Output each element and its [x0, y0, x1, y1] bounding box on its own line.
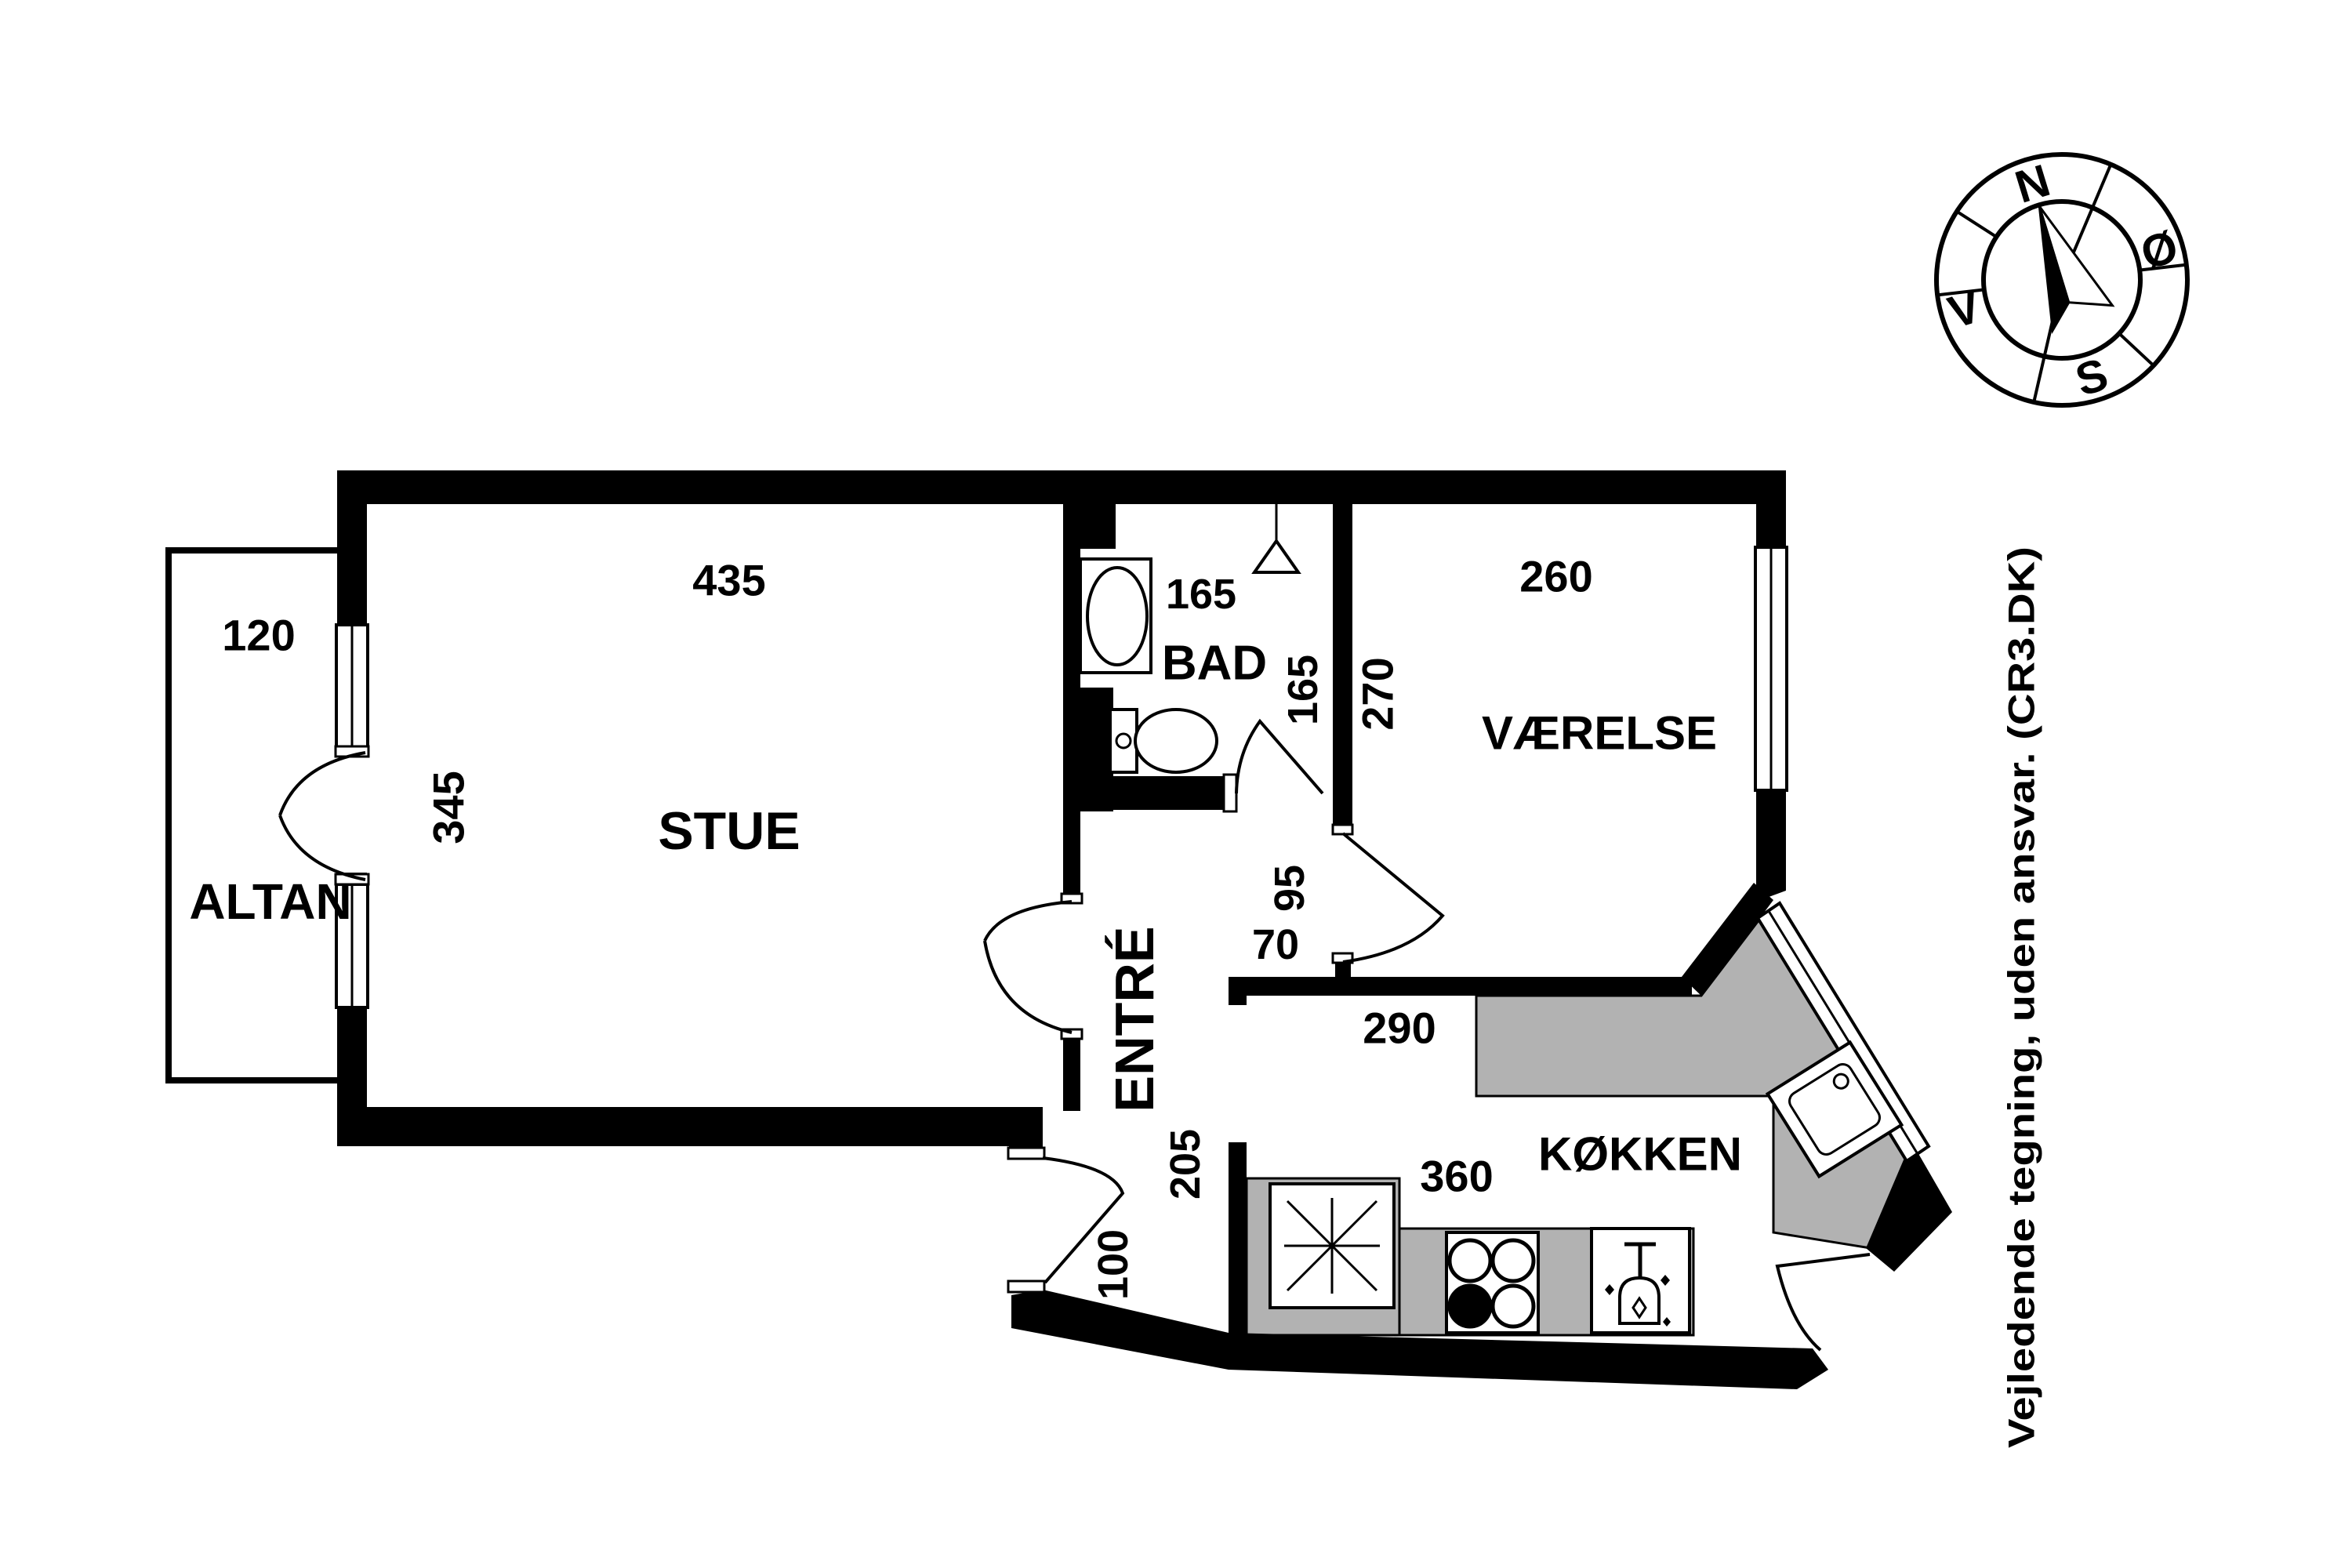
room-label-koekken: KØKKEN — [1538, 1128, 1742, 1181]
disclaimer-text: Vejledende tegning, uden ansvar. (CR3.DK… — [2001, 546, 2042, 1448]
vaerelse-door-sill-top — [1333, 825, 1352, 834]
room-label-bad: BAD — [1162, 637, 1267, 691]
balcony-door-icon — [280, 753, 365, 880]
wall-left-upper — [337, 470, 367, 625]
room-label-stue: STUE — [658, 801, 800, 861]
bathroom-sink-icon — [1080, 559, 1151, 673]
wall-top — [337, 470, 1786, 504]
back-door-icon — [1777, 1254, 1870, 1350]
wall-kitchen-bottom — [1229, 1333, 1828, 1389]
wall-vaerelse-door-stub — [1335, 962, 1351, 978]
dim-entre-width: 100 — [1090, 1229, 1137, 1300]
dim-bad-height: 165 — [1279, 655, 1327, 725]
wall-kitchen-top-stub — [1229, 977, 1247, 1005]
compass-icon: N Ø S V — [1905, 123, 2219, 438]
dim-altan-depth: 120 — [222, 611, 295, 660]
wall-kitchen-top — [1229, 977, 1692, 996]
floor-plan-page: N Ø S V ALTAN STUE BAD VÆRELSE ENTRÉ KØK… — [0, 0, 2352, 1568]
dim-koekken-top-width: 290 — [1363, 1004, 1436, 1053]
stue-window-upper-icon — [336, 625, 368, 748]
wall-bad-nw-block — [1080, 470, 1116, 549]
wall-bad-bottom — [1080, 776, 1225, 810]
door-sills — [336, 746, 1352, 1292]
dim-koekken-bottom-width: 360 — [1420, 1152, 1493, 1201]
vaerelse-window-icon — [1755, 547, 1787, 790]
room-label-vaerelse: VÆRELSE — [1482, 707, 1717, 760]
wall-stue-east-upper — [1063, 470, 1080, 900]
fridge-icon — [1270, 1184, 1394, 1308]
dim-vaerelse-width: 260 — [1519, 552, 1592, 601]
wall-bad-vaerelse — [1333, 470, 1352, 829]
wall-entre-slanted — [1011, 1290, 1229, 1370]
bad-door-icon — [1236, 721, 1323, 793]
room-label-entre: ENTRÉ — [1104, 926, 1165, 1112]
floor-plan-drawing: N Ø S V ALTAN STUE BAD VÆRELSE ENTRÉ KØK… — [0, 0, 2352, 1568]
dim-entre-nook-width: 95 — [1266, 865, 1313, 912]
wall-left-lower — [337, 1007, 367, 1109]
dishwasher-icon — [1592, 1229, 1690, 1333]
front-door-sill-bottom — [1008, 1281, 1044, 1292]
shower-icon — [1254, 504, 1298, 572]
dim-stue-width: 435 — [692, 556, 765, 605]
bad-door-sill-left — [1224, 775, 1236, 811]
dim-vaerelse-height: 270 — [1353, 657, 1403, 730]
stue-door-icon — [985, 902, 1072, 1033]
wall-kitchen-divider — [1229, 1142, 1247, 1337]
dim-entre-height: 205 — [1162, 1129, 1209, 1200]
front-door-sill-top — [1008, 1148, 1044, 1159]
wall-frontdoor-corner — [1009, 1107, 1043, 1151]
dim-bad-width: 165 — [1166, 571, 1236, 618]
wall-right-upper — [1756, 470, 1786, 547]
room-label-altan: ALTAN — [189, 873, 351, 930]
wall-stue-bottom — [337, 1107, 1043, 1146]
wall-right-lower — [1756, 790, 1786, 902]
dim-stue-height: 345 — [424, 771, 474, 844]
vaerelse-door-icon — [1343, 833, 1443, 962]
wall-stue-east-lower — [1063, 1036, 1080, 1111]
toilet-icon — [1110, 710, 1217, 772]
stove-icon — [1446, 1232, 1538, 1333]
dim-entre-nook-offset: 70 — [1252, 921, 1299, 968]
room-labels: ALTAN STUE BAD VÆRELSE ENTRÉ KØKKEN — [189, 637, 1742, 1181]
